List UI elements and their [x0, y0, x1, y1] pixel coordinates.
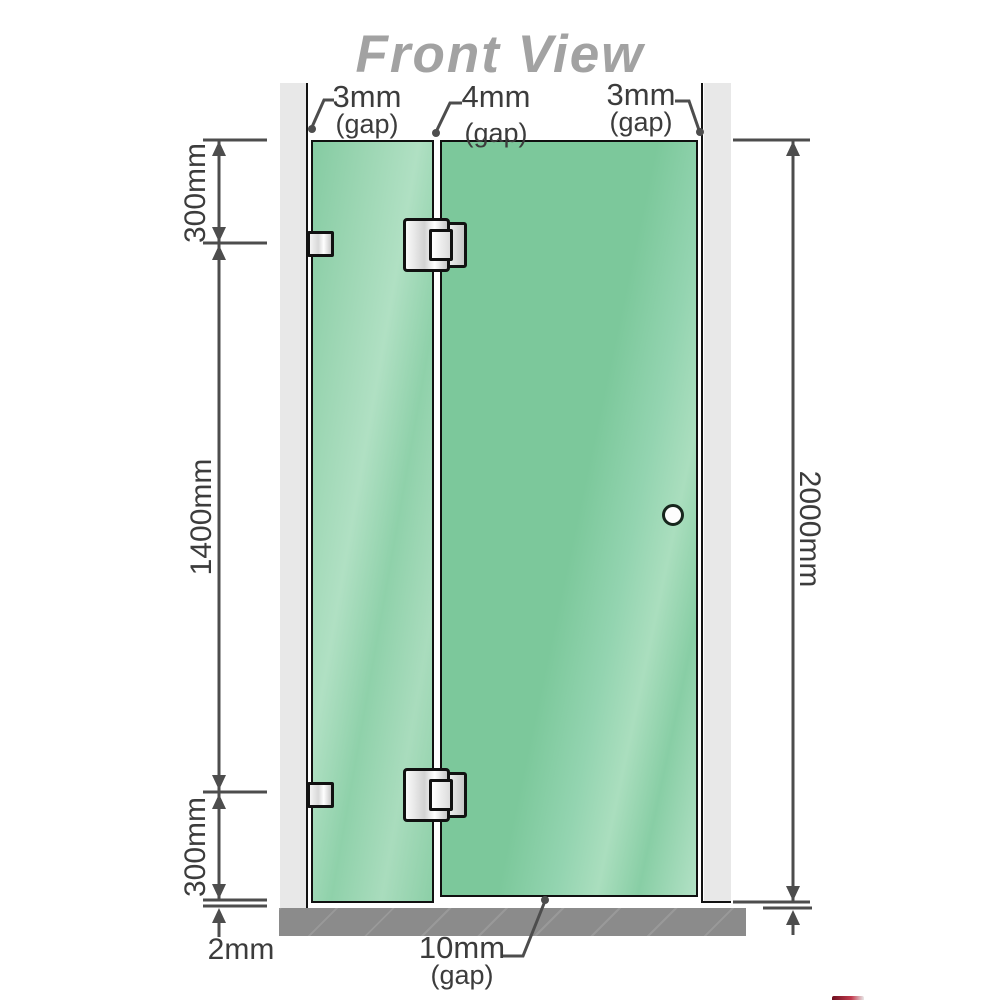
dimension-label-1400mm: 1400mm — [185, 437, 219, 597]
left-wall — [280, 83, 306, 908]
dimension-label-300mm-bottom: 300mm — [179, 767, 213, 927]
glass-hinge-top-icon — [403, 218, 467, 272]
hinge-center-tab — [429, 779, 453, 811]
right-wall — [704, 83, 731, 903]
gap-label-bottom: 10mm (gap) — [392, 933, 532, 987]
glass-hinge-bottom-icon — [403, 768, 467, 822]
front-view-diagram: Front View — [0, 0, 1000, 1000]
dimension-label-2mm: 2mm — [186, 933, 296, 967]
door-knob-icon — [662, 504, 684, 526]
gap-bottom-suffix: (gap) — [392, 963, 532, 987]
gap-label-left: 3mm (gap) — [312, 82, 422, 136]
dimension-label-2000mm: 2000mm — [792, 449, 826, 609]
gap-right-suffix: (gap) — [586, 110, 696, 134]
wall-bracket-top-icon — [307, 231, 334, 257]
wall-bracket-bottom-icon — [307, 782, 334, 808]
gap-label-right: 3mm (gap) — [586, 80, 696, 134]
gap-right-value: 3mm — [586, 80, 696, 110]
hinge-center-tab — [429, 229, 453, 261]
gap-middle-value: 4mm — [440, 82, 552, 112]
cropped-logo — [832, 996, 864, 1000]
right-wall-edge-line — [701, 83, 703, 903]
gap-left-suffix: (gap) — [312, 112, 422, 136]
gap-middle-suffix: (gap) — [440, 121, 552, 145]
floor-base — [279, 908, 746, 936]
page-title: Front View — [0, 24, 1000, 85]
dimension-label-300mm-top: 300mm — [179, 113, 213, 273]
door-glass-panel — [440, 140, 698, 897]
gap-label-middle: 4mm (gap) — [440, 82, 552, 145]
gap-bottom-value: 10mm — [392, 933, 532, 963]
right-wall-bottom-line — [701, 901, 731, 903]
gap-left-value: 3mm — [312, 82, 422, 112]
